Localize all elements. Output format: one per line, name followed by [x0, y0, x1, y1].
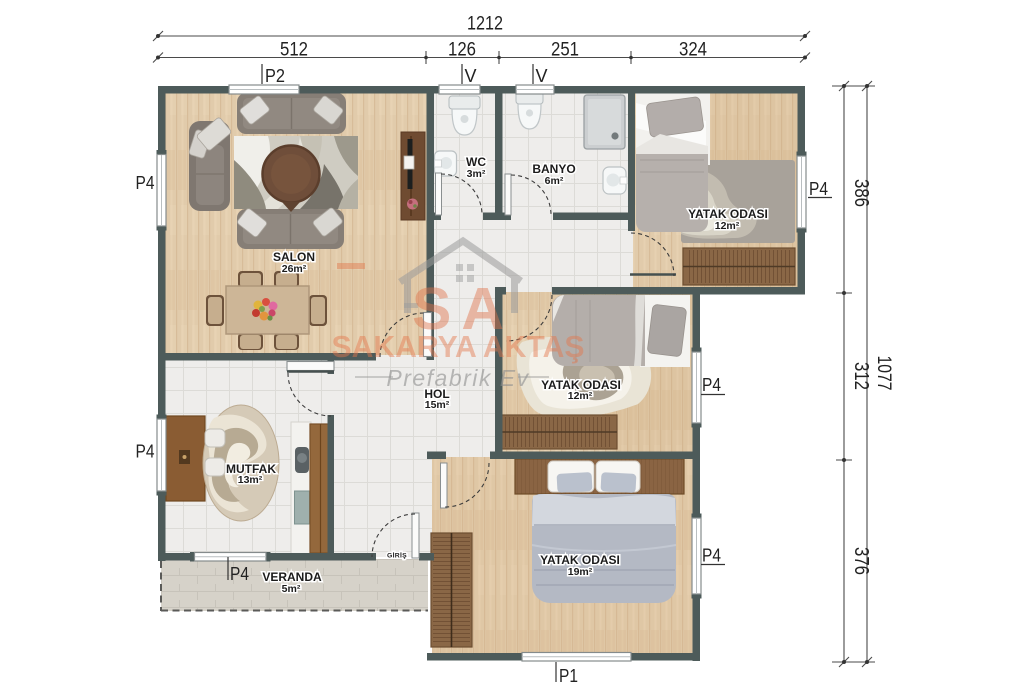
svg-text:P4: P4 [230, 564, 249, 584]
svg-text:15m²: 15m² [425, 399, 450, 411]
svg-text:P4: P4 [702, 375, 721, 395]
svg-text:5m²: 5m² [282, 583, 301, 595]
svg-text:376: 376 [850, 547, 872, 575]
svg-text:V: V [465, 66, 477, 86]
svg-text:P4: P4 [136, 173, 155, 193]
svg-text:YATAK ODASI: YATAK ODASI [540, 553, 620, 567]
svg-text:P1: P1 [559, 666, 578, 686]
svg-text:13m²: 13m² [238, 474, 263, 486]
svg-text:V: V [536, 66, 548, 86]
svg-text:SALON: SALON [273, 250, 315, 264]
svg-text:12m²: 12m² [568, 390, 593, 402]
svg-text:312: 312 [850, 362, 872, 390]
svg-text:19m²: 19m² [568, 566, 593, 578]
svg-text:P4: P4 [702, 546, 721, 566]
svg-text:YATAK ODASI: YATAK ODASI [688, 207, 768, 221]
svg-text:3m²: 3m² [467, 168, 486, 180]
svg-text:386: 386 [850, 179, 872, 207]
svg-text:SAKARYA AKTAŞ: SAKARYA AKTAŞ [332, 329, 585, 364]
svg-text:VERANDA: VERANDA [262, 570, 322, 584]
svg-text:GİRİŞ: GİRİŞ [387, 552, 407, 560]
svg-text:P4: P4 [136, 442, 155, 462]
svg-text:26m²: 26m² [282, 263, 307, 275]
svg-text:1077: 1077 [873, 356, 894, 391]
svg-text:P4: P4 [809, 179, 828, 199]
svg-text:WC: WC [466, 155, 486, 169]
svg-text:Prefabrik Ev: Prefabrik Ev [386, 365, 529, 391]
svg-text:12m²: 12m² [715, 220, 740, 232]
svg-text:BANYO: BANYO [532, 162, 575, 176]
svg-text:1212: 1212 [467, 14, 503, 35]
svg-text:6m²: 6m² [545, 175, 564, 187]
svg-text:P2: P2 [265, 66, 285, 86]
